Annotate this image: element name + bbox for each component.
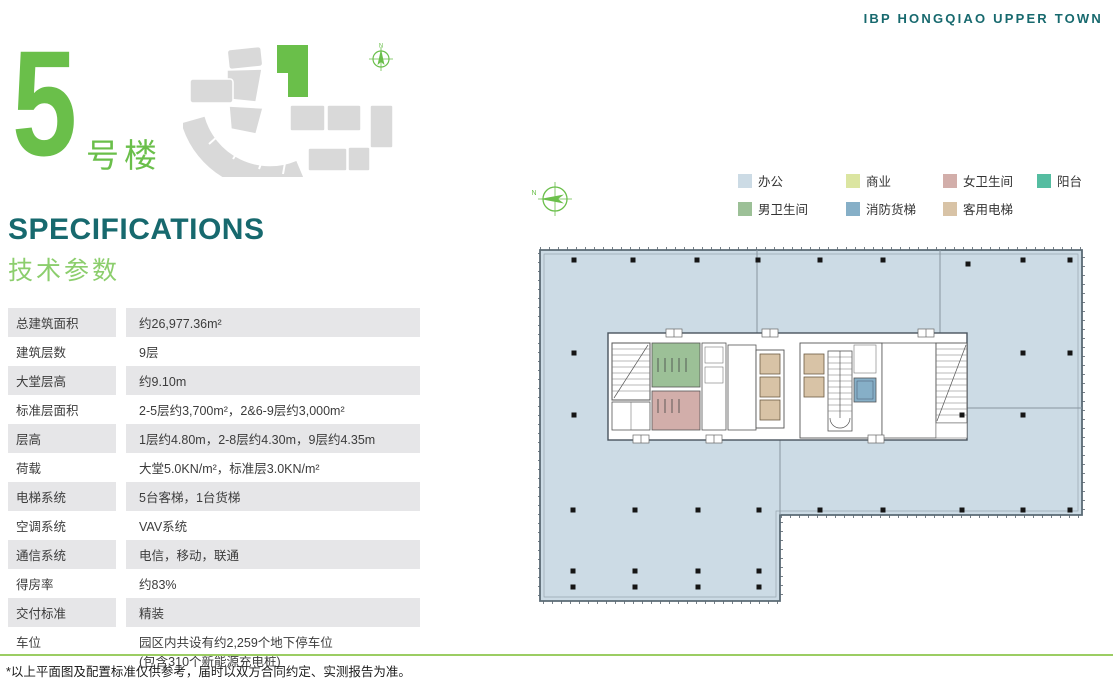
section-title-en: SPECIFICATIONS [8,213,264,247]
site-compass-n-label: N [379,44,383,50]
spec-value: VAV系统 [126,511,420,540]
spec-row: 荷载 大堂5.0KN/m²，标准层3.0KN/m² [8,453,420,482]
brochure-page: IBP HONGQIAO UPPER TOWN 5 号楼 N SPECIFIC [0,0,1113,679]
core-rooms-southwest [612,402,650,430]
building-number-suffix: 号楼 [86,129,162,177]
female-toilet-area [652,391,700,430]
spec-row: 得房率 约83% [8,569,420,598]
stair-center [828,351,852,431]
spec-label: 得房率 [8,569,116,598]
legend-label: 男卫生间 [758,199,808,218]
spec-label: 层高 [8,424,116,453]
legend-swatch-female-toilet [943,174,957,188]
legend-label: 商业 [866,171,891,190]
footer-divider [0,654,1113,656]
spec-value: 约9.10m [126,366,420,395]
section-title-zh: 技术参数 [8,251,120,287]
stair-east [936,343,967,438]
legend-item-passenger-elevator: 客用电梯 [943,199,1013,218]
spec-row: 交付标准 精装 [8,598,420,627]
spec-label: 总建筑面积 [8,308,116,337]
core-section-east [800,343,882,438]
legend-item-retail: 商业 [846,171,891,190]
legend-item-fire-elevator: 消防货梯 [846,199,916,218]
site-map-highlight-building-5 [277,45,308,97]
male-toilet-area [652,343,700,387]
legend-item-female-toilet: 女卫生间 [943,171,1013,190]
spec-label: 标准层面积 [8,395,116,424]
legend-swatch-office [738,174,752,188]
spec-value: 约83% [126,569,420,598]
legend-swatch-passenger-elevator [943,202,957,216]
spec-value: 2-5层约3,700m²，2&6-9层约3,000m² [126,395,420,424]
spec-value: 精装 [126,598,420,627]
core-shaft [702,343,726,430]
spec-row: 大堂层高 约9.10m [8,366,420,395]
spec-label: 建筑层数 [8,337,116,366]
legend-swatch-male-toilet [738,202,752,216]
spec-row: 通信系统 电信，移动，联通 [8,540,420,569]
spec-label: 车位 [8,627,116,656]
legend-label: 女卫生间 [963,171,1013,190]
spec-row: 电梯系统 5台客梯，1台货梯 [8,482,420,511]
spec-value: 电信，移动，联通 [126,540,420,569]
spec-table: 总建筑面积 约26,977.36m² 建筑层数 9层 大堂层高 约9.10m 标… [8,308,420,675]
spec-row: 建筑层数 9层 [8,337,420,366]
passenger-elevator-bank-1 [756,350,784,428]
spec-label: 交付标准 [8,598,116,627]
core-band [608,329,967,443]
legend-swatch-balcony [1037,174,1051,188]
spec-value: 5台客梯，1台货梯 [126,482,420,511]
legend-item-office: 办公 [738,171,783,190]
spec-label: 通信系统 [8,540,116,569]
legend-swatch-retail [846,174,860,188]
spec-value: 1层约4.80m，2-8层约4.30m，9层约4.35m [126,424,420,453]
floor-plan [538,246,1102,626]
core-room-east [882,343,936,438]
spec-value: 9层 [126,337,420,366]
spec-label: 荷载 [8,453,116,482]
spec-label: 电梯系统 [8,482,116,511]
spec-label: 大堂层高 [8,366,116,395]
plan-compass-n-label: N [531,190,536,197]
legend-label: 客用电梯 [963,199,1013,218]
site-compass-icon: N [369,44,393,72]
legend-swatch-fire-elevator [846,202,860,216]
spec-row: 标准层面积 2-5层约3,700m²，2&6-9层约3,000m² [8,395,420,424]
fire-elevator [854,378,876,402]
legend-item-male-toilet: 男卫生间 [738,199,808,218]
plan-compass-icon: N [522,172,584,226]
legend-label: 消防货梯 [866,199,916,218]
core-room-mid [728,345,756,430]
spec-label: 空调系统 [8,511,116,540]
legend-item-balcony: 阳台 [1037,171,1082,190]
footer-disclaimer: *以上平面图及配置标准仅供参考，届时以双方合同约定、实测报告为准。 [6,661,411,679]
legend-label: 办公 [758,171,783,190]
site-map: N [183,42,398,177]
spec-row: 总建筑面积 约26,977.36m² [8,308,420,337]
legend-label: 阳台 [1057,171,1082,190]
spec-row: 空调系统 VAV系统 [8,511,420,540]
spec-row: 层高 1层约4.80m，2-8层约4.30m，9层约4.35m [8,424,420,453]
building-number: 5 [12,28,77,178]
spec-value: 约26,977.36m² [126,308,420,337]
stair-west [612,343,650,400]
brand-title: IBP HONGQIAO UPPER TOWN [864,11,1103,26]
spec-value: 大堂5.0KN/m²，标准层3.0KN/m² [126,453,420,482]
